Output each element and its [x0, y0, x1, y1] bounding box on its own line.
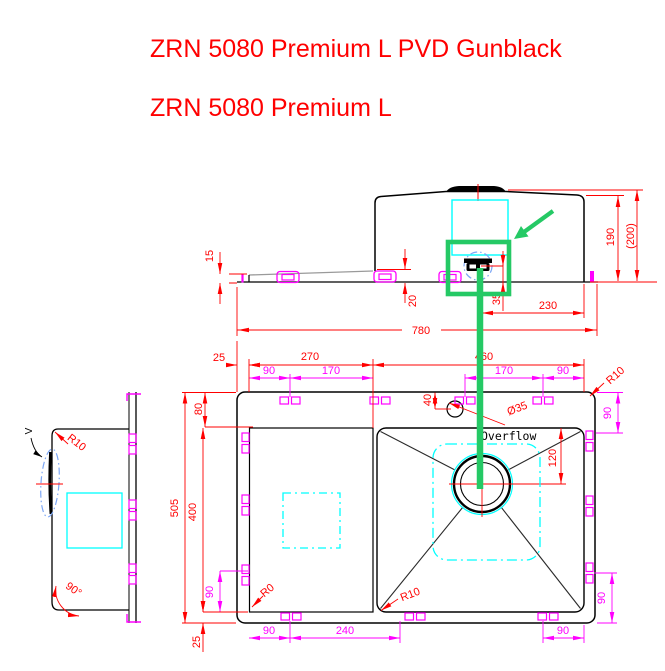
- dim-190: 190: [605, 228, 617, 246]
- dim-200: (200): [625, 223, 637, 249]
- dim-90-bottom-right: 90: [557, 625, 569, 637]
- dim-170-left: 170: [322, 365, 340, 377]
- bowl-edge-thick-detail: [50, 452, 51, 514]
- dim-90-top-right: 90: [557, 365, 569, 377]
- dim-90-bottom-left: 90: [263, 625, 275, 637]
- dim-15: 15: [204, 250, 216, 262]
- detail-v-label: V: [24, 427, 35, 434]
- dim-170-right: 170: [495, 365, 513, 377]
- dim-230: 230: [539, 300, 557, 312]
- dim-90-right-bottom-vertical: 90: [596, 592, 608, 604]
- dim-80: 80: [193, 403, 205, 415]
- technical-drawing-sheet: ZRN 5080 Premium L PVD Gunblack ZRN 5080…: [0, 0, 665, 671]
- product-title-line2: ZRN 5080 Premium L: [150, 94, 392, 122]
- product-title-line1: ZRN 5080 Premium L PVD Gunblack: [150, 35, 562, 63]
- dim-25-bottom: 25: [191, 636, 203, 648]
- dim-90-left-vertical: 90: [204, 586, 216, 598]
- dim-240: 240: [336, 625, 354, 637]
- dim-20: 20: [407, 295, 419, 307]
- dim-120: 120: [547, 449, 559, 467]
- overflow-label: Overflow: [481, 429, 536, 443]
- dim-90-top-left: 90: [263, 365, 275, 377]
- dim-780: 780: [412, 325, 430, 337]
- dim-40: 40: [422, 394, 434, 406]
- dim-90-right-top-vertical: 90: [602, 407, 614, 419]
- sink-drawing-svg: ZRN 5080 Premium L PVD Gunblack ZRN 5080…: [0, 0, 665, 671]
- dim-400: 400: [187, 503, 199, 521]
- dim-505: 505: [169, 499, 181, 517]
- right-edge-clip-mark: [590, 271, 594, 282]
- dim-270: 270: [301, 351, 319, 363]
- dim-25-top: 25: [213, 352, 225, 364]
- tap-boss-bump: [446, 186, 506, 192]
